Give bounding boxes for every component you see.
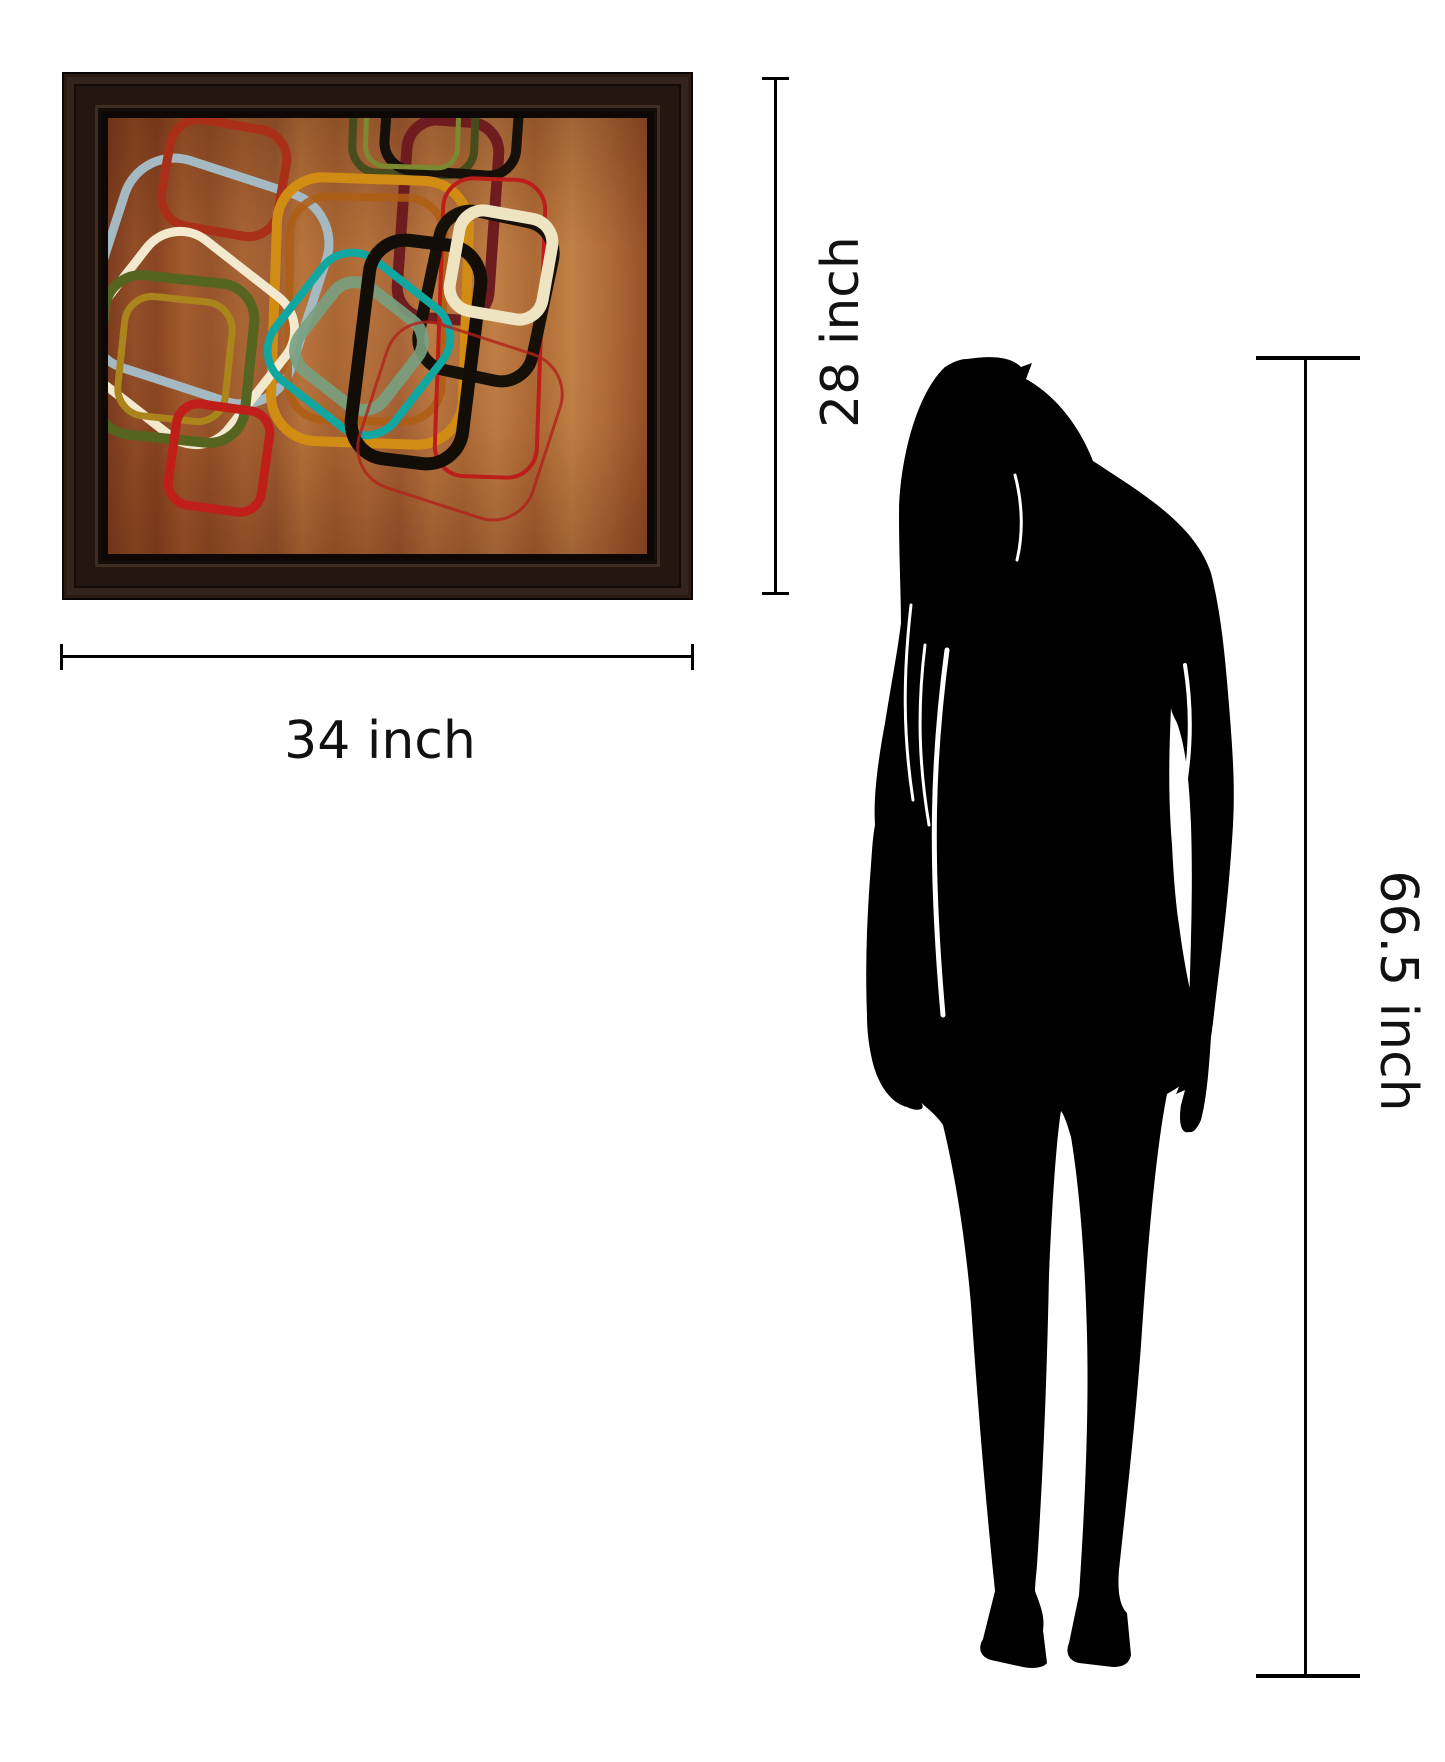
framed-artwork	[62, 72, 693, 600]
woman-silhouette	[855, 355, 1235, 1670]
product-dimension-diagram: { "product": { "description": "Framed ab…	[0, 0, 1445, 1762]
artwork-canvas	[108, 118, 647, 554]
person-height-line-bottom-cap	[1256, 1674, 1360, 1678]
artwork-width-line	[61, 655, 693, 658]
woman-silhouette-body	[866, 357, 1234, 1668]
person-height-label: 66.5 inch	[1372, 870, 1424, 1111]
person-height-line-top-cap	[1256, 356, 1360, 360]
artwork-height-line	[774, 78, 777, 595]
artwork-width-label: 34 inch	[284, 715, 476, 767]
person-height-line	[1304, 358, 1307, 1676]
artwork-height-line-bottom-cap	[762, 592, 789, 595]
artwork-width-line-left-cap	[60, 644, 63, 670]
artwork-height-line-top-cap	[762, 77, 789, 80]
artwork-width-line-right-cap	[691, 644, 694, 670]
